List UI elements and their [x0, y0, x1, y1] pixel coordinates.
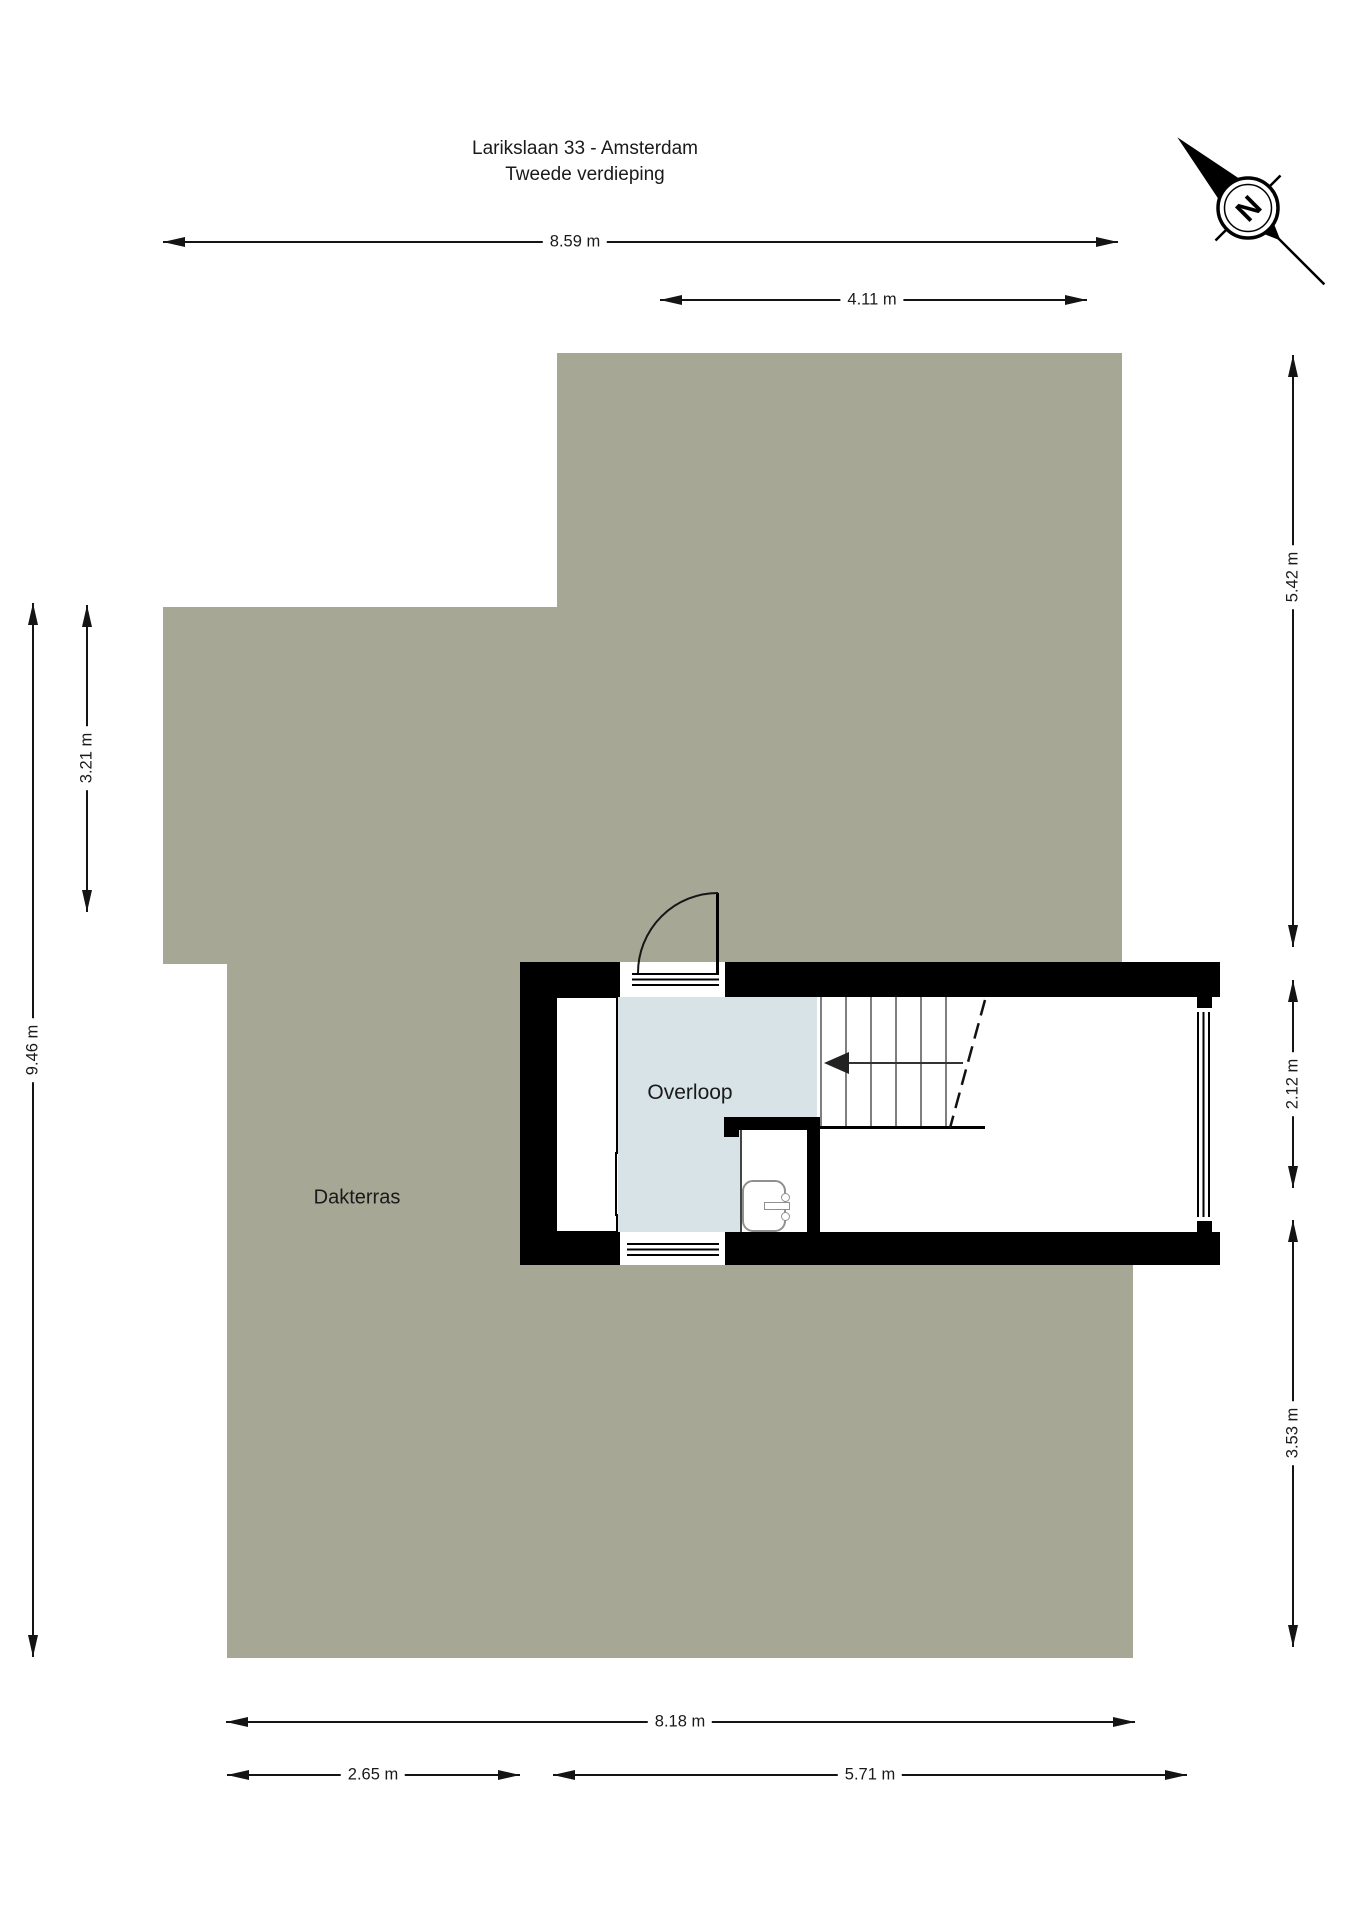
dimension-layer: 8.59 m4.11 m3.21 m9.46 m5.42 m2.12 m3.53… [0, 0, 1358, 1920]
dimension-label: 8.18 m [648, 1712, 712, 1733]
dimension-4.11-m: 4.11 m [660, 290, 1087, 310]
dimension-5.71-m: 5.71 m [553, 1765, 1187, 1785]
dimension-3.21-m: 3.21 m [77, 605, 97, 912]
dimension-label: 5.42 m [1283, 545, 1304, 609]
floorplan-page: Larikslaan 33 - Amsterdam Tweede verdiep… [0, 0, 1358, 1920]
dimension-8.18-m: 8.18 m [226, 1712, 1135, 1732]
dimension-label: 2.12 m [1283, 1052, 1304, 1116]
dimension-5.42-m: 5.42 m [1283, 355, 1303, 947]
dimension-label: 5.71 m [838, 1765, 902, 1786]
dimension-label: 3.21 m [77, 726, 98, 790]
dimension-3.53-m: 3.53 m [1283, 1220, 1303, 1647]
dimension-2.65-m: 2.65 m [227, 1765, 520, 1785]
dimension-9.46-m: 9.46 m [23, 603, 43, 1657]
dimension-label: 8.59 m [543, 232, 607, 253]
dimension-2.12-m: 2.12 m [1283, 980, 1303, 1188]
dimension-label: 4.11 m [840, 290, 903, 311]
dimension-label: 9.46 m [23, 1018, 44, 1082]
dimension-label: 2.65 m [341, 1765, 405, 1786]
dimension-label: 3.53 m [1283, 1401, 1304, 1465]
dimension-8.59-m: 8.59 m [163, 232, 1118, 252]
